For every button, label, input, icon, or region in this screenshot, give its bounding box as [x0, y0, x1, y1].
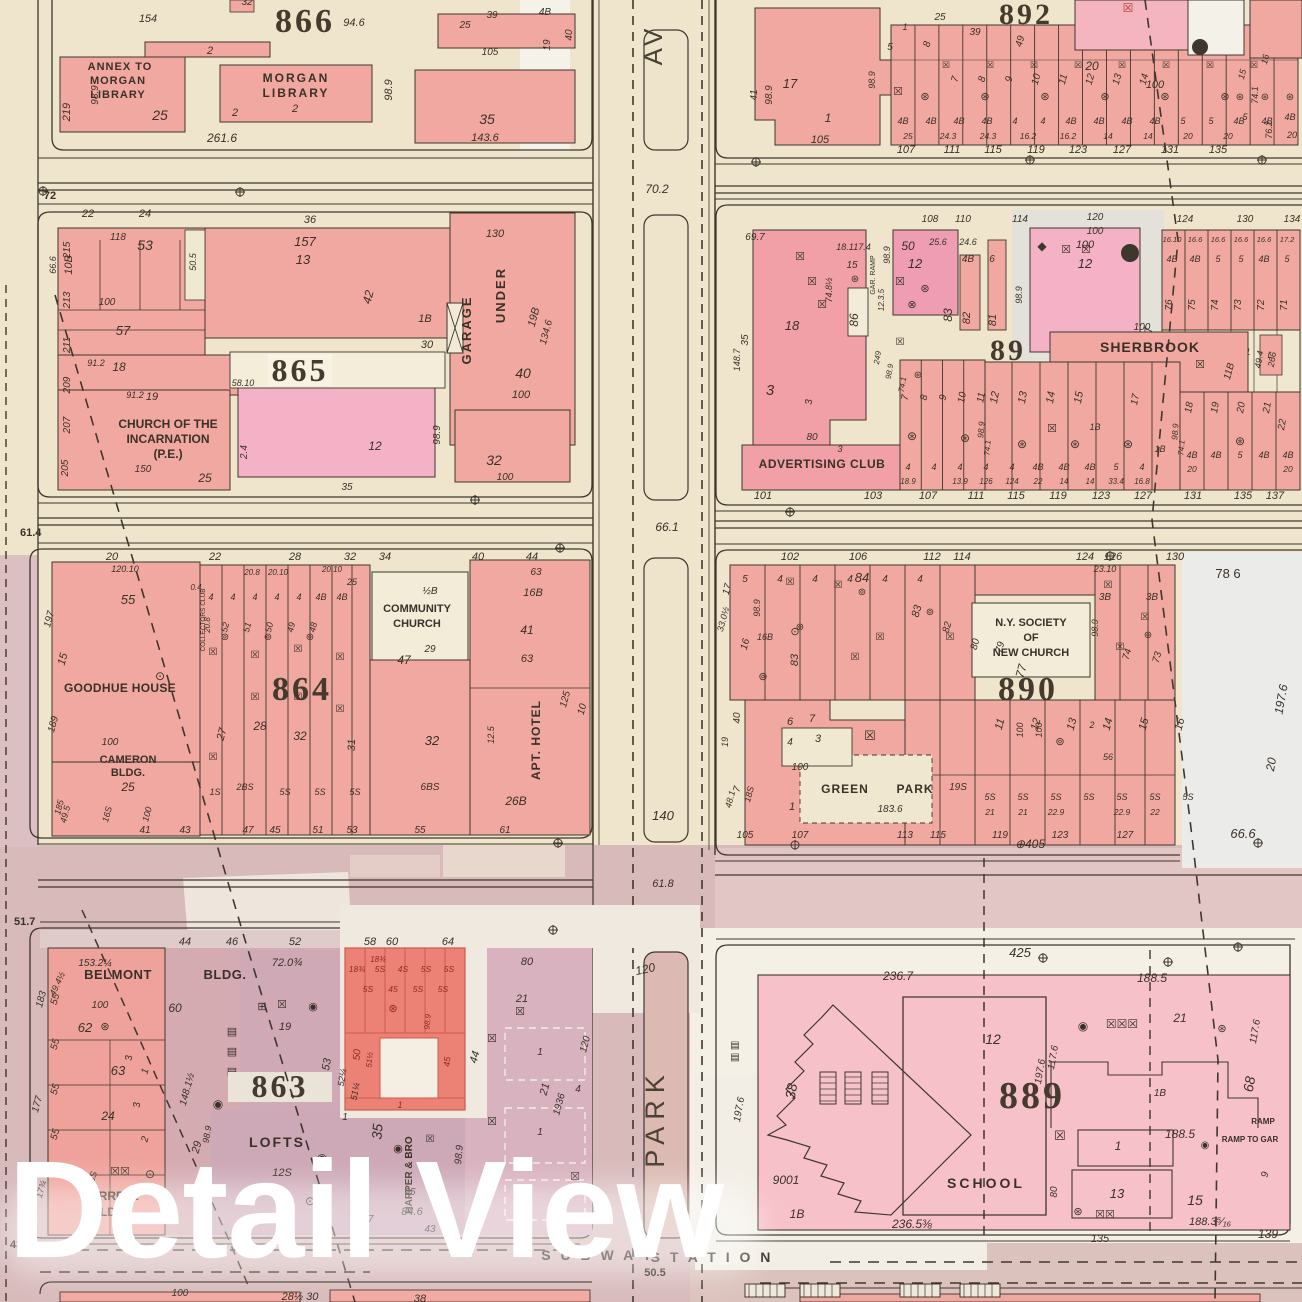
- svg-text:13.9: 13.9: [952, 477, 968, 486]
- svg-text:23.10: 23.10: [1093, 564, 1117, 574]
- svg-text:⊚: ⊚: [306, 632, 314, 643]
- svg-text:13: 13: [296, 252, 311, 267]
- svg-text:24.3: 24.3: [939, 131, 957, 141]
- svg-text:4: 4: [905, 462, 910, 472]
- svg-text:⊛: ⊛: [980, 91, 989, 103]
- svg-text:4: 4: [917, 574, 923, 585]
- svg-text:1: 1: [342, 1112, 348, 1123]
- svg-text:143.6: 143.6: [471, 132, 499, 144]
- svg-text:130: 130: [486, 228, 505, 240]
- svg-text:33.4: 33.4: [1108, 477, 1124, 486]
- svg-text:BLDG.: BLDG.: [204, 967, 247, 982]
- svg-text:66.6: 66.6: [48, 256, 58, 274]
- svg-text:74.1: 74.1: [1250, 86, 1260, 104]
- svg-text:78 6: 78 6: [1215, 566, 1240, 581]
- svg-text:5S: 5S: [444, 964, 455, 974]
- svg-text:22: 22: [1276, 418, 1289, 432]
- svg-text:20.8: 20.8: [243, 568, 260, 577]
- svg-text:4B: 4B: [1186, 450, 1197, 460]
- svg-text:120: 120: [1087, 212, 1104, 223]
- svg-text:4B: 4B: [1258, 450, 1269, 460]
- svg-text:5S: 5S: [1149, 792, 1160, 802]
- svg-text:84: 84: [855, 570, 869, 585]
- svg-text:98.9: 98.9: [882, 246, 892, 264]
- svg-text:62: 62: [78, 1020, 93, 1035]
- svg-text:3: 3: [837, 444, 842, 454]
- svg-text:19S: 19S: [949, 782, 967, 793]
- svg-text:GARAGE: GARAGE: [459, 295, 474, 364]
- svg-text:47: 47: [242, 825, 254, 836]
- svg-text:100: 100: [102, 737, 119, 748]
- svg-text:64: 64: [442, 936, 454, 948]
- svg-text:51½: 51½: [364, 1051, 374, 1068]
- svg-text:⊛: ⊛: [1235, 434, 1245, 448]
- svg-text:119: 119: [1027, 144, 1045, 156]
- svg-text:2: 2: [231, 107, 238, 119]
- svg-text:60: 60: [168, 1001, 182, 1015]
- svg-text:124: 124: [1005, 477, 1019, 486]
- svg-text:19: 19: [279, 1021, 291, 1033]
- svg-text:123: 123: [1052, 830, 1069, 841]
- svg-text:40: 40: [472, 551, 485, 563]
- svg-text:16B: 16B: [757, 632, 773, 642]
- svg-text:119: 119: [992, 830, 1008, 841]
- svg-text:5S: 5S: [1050, 792, 1061, 802]
- svg-text:4B: 4B: [336, 592, 347, 602]
- svg-text:3B: 3B: [1146, 592, 1159, 603]
- svg-text:☒: ☒: [294, 644, 303, 655]
- svg-text:44: 44: [526, 551, 538, 563]
- svg-text:123: 123: [1092, 490, 1111, 502]
- svg-text:98.9: 98.9: [764, 85, 775, 105]
- svg-text:72.0¾: 72.0¾: [272, 957, 303, 969]
- svg-text:☒☒☒: ☒☒☒: [1106, 1017, 1138, 1031]
- svg-text:4: 4: [787, 737, 793, 748]
- svg-text:22.9: 22.9: [1047, 807, 1065, 817]
- svg-text:22.9: 22.9: [1113, 807, 1131, 817]
- svg-text:24: 24: [100, 1109, 115, 1123]
- svg-text:4: 4: [296, 592, 301, 602]
- svg-text:25.6: 25.6: [928, 237, 947, 247]
- svg-text:6: 6: [989, 254, 995, 265]
- svg-text:35: 35: [740, 334, 751, 346]
- svg-text:98.9: 98.9: [1090, 619, 1100, 637]
- svg-text:21: 21: [984, 807, 995, 817]
- svg-text:153.2¼: 153.2¼: [78, 957, 111, 969]
- svg-text:(P.E.): (P.E.): [153, 447, 182, 461]
- svg-text:105: 105: [737, 830, 754, 841]
- svg-text:130: 130: [1237, 214, 1254, 225]
- svg-text:98.9: 98.9: [1014, 286, 1024, 304]
- svg-text:RAMP TO GAR: RAMP TO GAR: [1222, 1135, 1279, 1144]
- svg-text:CAMERON: CAMERON: [100, 754, 157, 766]
- svg-text:55: 55: [414, 825, 426, 836]
- svg-text:100: 100: [512, 389, 531, 401]
- svg-text:107: 107: [919, 490, 938, 502]
- svg-text:⊕405: ⊕405: [1015, 837, 1045, 851]
- svg-text:38: 38: [782, 1082, 800, 1100]
- svg-text:5: 5: [742, 574, 748, 585]
- svg-text:20.10: 20.10: [321, 565, 343, 574]
- svg-text:135: 135: [1091, 1233, 1110, 1245]
- svg-text:MORGAN: MORGAN: [90, 75, 146, 87]
- svg-text:24.6: 24.6: [958, 237, 977, 247]
- svg-text:14: 14: [1143, 131, 1153, 141]
- svg-text:4B: 4B: [925, 116, 936, 126]
- svg-text:100: 100: [172, 1288, 189, 1299]
- svg-text:21: 21: [1261, 401, 1274, 415]
- svg-text:INCARNATION: INCARNATION: [126, 432, 209, 446]
- svg-text:24.3: 24.3: [979, 131, 997, 141]
- svg-text:20: 20: [1286, 130, 1297, 140]
- svg-text:GAR. RAMP: GAR. RAMP: [870, 255, 877, 295]
- svg-text:40: 40: [515, 365, 531, 381]
- svg-text:4B: 4B: [1058, 462, 1069, 472]
- svg-text:5S: 5S: [314, 787, 325, 797]
- svg-text:☒: ☒: [1030, 60, 1038, 70]
- svg-text:25: 25: [120, 780, 135, 794]
- svg-text:4: 4: [1139, 462, 1144, 472]
- svg-text:102: 102: [781, 551, 799, 563]
- svg-text:2: 2: [206, 45, 213, 57]
- svg-text:⊛: ⊛: [1236, 92, 1244, 103]
- svg-text:5S: 5S: [438, 984, 449, 994]
- svg-text:4: 4: [575, 1084, 581, 1095]
- svg-text:50.5: 50.5: [188, 252, 198, 271]
- svg-text:68: 68: [1240, 1075, 1258, 1093]
- svg-text:134: 134: [1284, 214, 1301, 225]
- svg-text:PARK: PARK: [896, 782, 933, 796]
- svg-text:115: 115: [930, 830, 946, 841]
- svg-text:☒: ☒: [895, 276, 905, 288]
- svg-text:☒: ☒: [251, 650, 260, 661]
- svg-text:20: 20: [1235, 401, 1248, 415]
- svg-text:4S: 4S: [398, 964, 409, 974]
- svg-text:107: 107: [792, 830, 809, 841]
- svg-text:865: 865: [272, 352, 329, 388]
- svg-text:☒: ☒: [1118, 60, 1126, 70]
- svg-text:44: 44: [179, 936, 191, 948]
- svg-text:16.2: 16.2: [1020, 131, 1037, 141]
- svg-text:4B: 4B: [1210, 450, 1221, 460]
- svg-text:12.3.5: 12.3.5: [877, 288, 886, 311]
- svg-text:103: 103: [864, 490, 883, 502]
- svg-text:5S: 5S: [375, 964, 386, 974]
- svg-text:51.7: 51.7: [14, 916, 35, 928]
- svg-text:45: 45: [269, 825, 281, 836]
- svg-text:50: 50: [901, 239, 915, 253]
- svg-text:139: 139: [1258, 1227, 1278, 1241]
- svg-text:40: 40: [564, 29, 575, 41]
- svg-text:4: 4: [1009, 462, 1014, 472]
- svg-text:1: 1: [825, 111, 832, 125]
- svg-text:4B: 4B: [1258, 254, 1269, 264]
- svg-text:57: 57: [116, 323, 131, 338]
- svg-text:☒: ☒: [487, 1033, 497, 1045]
- svg-text:4B: 4B: [1282, 450, 1293, 460]
- svg-text:1: 1: [1115, 1139, 1122, 1153]
- svg-text:30: 30: [421, 339, 434, 351]
- svg-text:135: 135: [1209, 144, 1228, 156]
- svg-text:108: 108: [922, 214, 939, 225]
- svg-text:RAMP: RAMP: [1251, 1117, 1275, 1126]
- svg-text:39: 39: [969, 27, 981, 38]
- svg-text:4: 4: [983, 462, 988, 472]
- svg-text:72: 72: [1256, 299, 1267, 311]
- svg-text:22: 22: [208, 551, 221, 563]
- svg-text:5S: 5S: [1182, 792, 1193, 802]
- svg-text:69.7: 69.7: [745, 232, 765, 243]
- svg-text:80: 80: [806, 432, 818, 443]
- svg-text:20: 20: [1084, 59, 1099, 73]
- svg-text:▤: ▤: [227, 1046, 237, 1058]
- svg-text:☒: ☒: [1250, 60, 1258, 70]
- svg-text:☒: ☒: [1074, 60, 1082, 70]
- svg-text:41: 41: [749, 89, 760, 100]
- svg-text:⊚: ⊚: [1055, 736, 1064, 748]
- svg-text:71: 71: [1279, 299, 1290, 310]
- svg-text:100: 100: [1134, 322, 1151, 333]
- svg-text:154: 154: [139, 13, 157, 25]
- svg-text:12: 12: [908, 256, 923, 271]
- svg-text:219: 219: [61, 103, 73, 122]
- svg-text:SHERBROOK: SHERBROOK: [1100, 339, 1200, 355]
- svg-text:☒: ☒: [515, 1006, 525, 1018]
- svg-text:4B: 4B: [1121, 116, 1132, 126]
- svg-text:14: 14: [1086, 477, 1095, 486]
- svg-text:AV: AV: [638, 25, 668, 66]
- svg-text:☒: ☒: [834, 580, 843, 591]
- svg-text:1: 1: [537, 1047, 543, 1058]
- svg-text:98.9: 98.9: [1169, 423, 1180, 441]
- svg-text:863: 863: [252, 1068, 309, 1104]
- svg-text:45: 45: [388, 984, 398, 994]
- svg-text:31: 31: [346, 739, 358, 751]
- svg-text:25: 25: [933, 12, 946, 23]
- svg-text:83: 83: [789, 653, 801, 666]
- svg-text:⊛: ⊛: [1073, 1206, 1082, 1218]
- svg-text:98.9: 98.9: [383, 79, 395, 100]
- svg-text:5S: 5S: [413, 984, 424, 994]
- svg-text:25: 25: [151, 107, 168, 123]
- svg-text:76.2: 76.2: [1264, 121, 1274, 139]
- svg-text:126: 126: [979, 477, 993, 486]
- svg-text:157: 157: [294, 234, 316, 249]
- svg-text:⊚: ⊚: [758, 671, 767, 683]
- svg-text:41: 41: [139, 825, 150, 836]
- svg-text:4B: 4B: [315, 592, 326, 602]
- svg-text:⊛: ⊛: [914, 370, 922, 381]
- svg-text:6BS: 6BS: [421, 782, 440, 793]
- svg-text:35: 35: [479, 111, 495, 127]
- svg-text:7: 7: [809, 713, 816, 725]
- svg-text:80: 80: [521, 956, 534, 968]
- svg-text:4: 4: [882, 574, 888, 585]
- svg-text:4B: 4B: [1032, 462, 1043, 472]
- svg-text:3: 3: [132, 1102, 143, 1108]
- svg-text:74.1: 74.1: [1176, 440, 1186, 456]
- svg-text:75: 75: [1187, 299, 1198, 311]
- svg-text:188.5: 188.5: [1165, 1127, 1195, 1141]
- svg-text:6: 6: [787, 716, 794, 728]
- svg-text:16B: 16B: [523, 587, 543, 599]
- svg-text:◆: ◆: [1037, 239, 1047, 253]
- svg-text:3: 3: [804, 399, 815, 405]
- svg-text:120.10: 120.10: [111, 564, 139, 574]
- svg-text:866: 866: [275, 3, 335, 40]
- svg-text:11: 11: [975, 391, 988, 403]
- svg-text:100: 100: [99, 297, 116, 308]
- svg-text:205: 205: [60, 459, 71, 477]
- svg-text:16.2: 16.2: [1060, 131, 1077, 141]
- svg-text:72: 72: [44, 190, 56, 202]
- svg-text:☒: ☒: [986, 60, 994, 70]
- svg-text:25: 25: [902, 131, 913, 141]
- svg-text:236.7: 236.7: [882, 969, 914, 983]
- svg-text:☒: ☒: [786, 577, 795, 588]
- svg-text:◉: ◉: [213, 1097, 223, 1111]
- svg-text:24: 24: [138, 208, 151, 220]
- svg-text:20: 20: [1182, 131, 1193, 141]
- svg-text:236.5⅜: 236.5⅜: [891, 1217, 932, 1231]
- svg-text:1B: 1B: [1154, 1088, 1167, 1099]
- svg-text:425: 425: [1009, 945, 1031, 960]
- svg-text:OF: OF: [1023, 632, 1039, 644]
- svg-text:40: 40: [732, 712, 743, 724]
- svg-text:86: 86: [847, 313, 861, 327]
- svg-text:130: 130: [1166, 551, 1185, 563]
- svg-text:45: 45: [442, 1055, 453, 1067]
- svg-text:889: 889: [999, 1075, 1065, 1117]
- svg-text:☒: ☒: [209, 647, 218, 658]
- svg-text:3: 3: [766, 382, 775, 399]
- svg-text:☒: ☒: [1054, 1128, 1066, 1143]
- svg-text:3: 3: [815, 733, 822, 745]
- svg-text:☒: ☒: [251, 692, 260, 703]
- svg-text:☒: ☒: [1195, 359, 1205, 371]
- svg-text:113: 113: [897, 830, 913, 841]
- svg-text:58: 58: [364, 936, 377, 948]
- svg-text:9001: 9001: [773, 1173, 800, 1187]
- svg-text:46: 46: [226, 936, 239, 948]
- svg-text:21: 21: [1017, 807, 1028, 817]
- svg-text:⊛: ⊛: [1217, 1023, 1226, 1035]
- svg-text:70.2: 70.2: [645, 182, 669, 196]
- svg-text:34: 34: [379, 551, 391, 563]
- svg-text:105: 105: [482, 47, 499, 58]
- svg-text:20: 20: [1186, 464, 1197, 474]
- svg-text:112: 112: [923, 551, 941, 563]
- svg-text:98.9: 98.9: [432, 425, 443, 445]
- svg-text:UNDER: UNDER: [493, 267, 508, 323]
- svg-text:4: 4: [208, 592, 213, 602]
- svg-text:4B: 4B: [981, 116, 992, 126]
- svg-text:115: 115: [984, 144, 1002, 156]
- svg-text:15: 15: [846, 260, 858, 271]
- svg-text:52: 52: [289, 936, 301, 948]
- svg-text:29: 29: [423, 644, 436, 655]
- svg-text:COMMUNITY: COMMUNITY: [383, 603, 451, 615]
- svg-text:73: 73: [1233, 299, 1244, 311]
- svg-text:82: 82: [961, 312, 973, 324]
- svg-text:⊛: ⊛: [1220, 91, 1229, 103]
- svg-text:118: 118: [110, 232, 126, 243]
- svg-text:GOODHUE HOUSE: GOODHUE HOUSE: [64, 681, 176, 695]
- svg-text:BLDG.: BLDG.: [111, 767, 145, 779]
- svg-text:18¾: 18¾: [370, 955, 386, 964]
- svg-text:4: 4: [252, 592, 257, 602]
- svg-text:⊙: ⊙: [155, 669, 165, 683]
- svg-text:◉: ◉: [1201, 1140, 1210, 1151]
- svg-text:25: 25: [458, 20, 471, 31]
- svg-text:100: 100: [1034, 722, 1044, 737]
- svg-text:58.10: 58.10: [232, 378, 255, 388]
- svg-text:CHURCH OF THE: CHURCH OF THE: [118, 417, 217, 431]
- svg-text:100: 100: [1087, 226, 1104, 237]
- svg-text:18.1: 18.1: [836, 242, 854, 252]
- svg-text:19: 19: [542, 39, 553, 51]
- svg-text:209: 209: [62, 376, 73, 394]
- svg-text:25: 25: [197, 471, 212, 485]
- svg-text:66.6: 66.6: [1230, 826, 1256, 841]
- svg-text:213: 213: [62, 291, 73, 309]
- svg-text:43: 43: [179, 825, 191, 836]
- svg-text:5: 5: [887, 42, 893, 53]
- svg-text:50: 50: [352, 1048, 364, 1060]
- svg-text:4B: 4B: [897, 116, 908, 126]
- svg-text:20: 20: [105, 551, 119, 563]
- svg-text:4B: 4B: [962, 254, 975, 265]
- svg-text:☒: ☒: [1162, 60, 1170, 70]
- svg-text:5S: 5S: [984, 792, 995, 802]
- svg-text:119: 119: [1049, 490, 1067, 502]
- svg-text:22: 22: [1149, 807, 1160, 817]
- svg-text:COLLECTORS CLUB: COLLECTORS CLUB: [200, 588, 207, 651]
- svg-text:☒: ☒: [1123, 1, 1134, 15]
- svg-text:81: 81: [987, 314, 999, 326]
- svg-text:5S: 5S: [1116, 792, 1127, 802]
- svg-text:56: 56: [1103, 752, 1113, 762]
- svg-text:53: 53: [137, 237, 153, 253]
- svg-text:13: 13: [1110, 1186, 1125, 1201]
- svg-text:135: 135: [1234, 490, 1253, 502]
- svg-text:28: 28: [288, 551, 302, 563]
- svg-text:1B: 1B: [1154, 444, 1165, 454]
- svg-text:☒: ☒: [1104, 580, 1113, 591]
- svg-text:5S: 5S: [1017, 792, 1028, 802]
- svg-text:14: 14: [1060, 477, 1069, 486]
- svg-text:4: 4: [1040, 116, 1045, 126]
- svg-text:107: 107: [897, 144, 916, 156]
- svg-text:4: 4: [847, 574, 853, 585]
- svg-text:131: 131: [1184, 490, 1202, 502]
- svg-text:105: 105: [811, 134, 830, 146]
- svg-text:⊛: ⊛: [1070, 437, 1080, 451]
- svg-text:21: 21: [515, 993, 528, 1005]
- svg-text:14: 14: [1044, 390, 1058, 404]
- svg-text:☒: ☒: [893, 86, 903, 98]
- svg-text:101: 101: [754, 490, 772, 502]
- svg-text:5S: 5S: [279, 787, 290, 797]
- svg-text:4: 4: [777, 574, 783, 585]
- svg-text:16.6: 16.6: [1257, 235, 1272, 244]
- svg-text:261.6: 261.6: [206, 131, 237, 145]
- svg-text:⊗: ⊗: [907, 299, 916, 311]
- svg-text:12: 12: [988, 390, 1002, 404]
- svg-text:100: 100: [792, 762, 809, 773]
- svg-text:111: 111: [968, 490, 985, 502]
- svg-text:4B: 4B: [539, 7, 552, 18]
